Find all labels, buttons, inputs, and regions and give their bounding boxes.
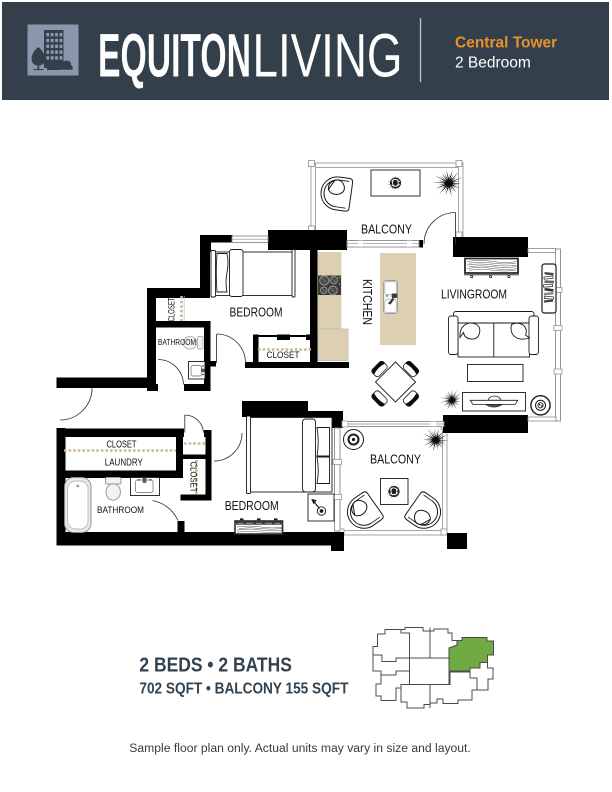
svg-text:BALCONY: BALCONY	[361, 223, 413, 237]
svg-text:BATHROOM: BATHROOM	[97, 505, 144, 516]
svg-text:CLOSET: CLOSET	[167, 297, 178, 321]
svg-text:2 Bedroom: 2 Bedroom	[455, 55, 531, 72]
svg-text:LIVINGROOM: LIVINGROOM	[441, 287, 507, 301]
svg-text:CLOSET: CLOSET	[188, 462, 199, 493]
svg-text:2 BEDS • 2 BATHS: 2 BEDS • 2 BATHS	[139, 654, 292, 676]
svg-text:CLOSET: CLOSET	[267, 350, 300, 360]
svg-text:Central Tower: Central Tower	[455, 35, 557, 52]
svg-text:LAUNDRY: LAUNDRY	[105, 458, 143, 469]
svg-text:CLOSET: CLOSET	[107, 439, 137, 450]
svg-text:BEDROOM: BEDROOM	[230, 305, 283, 320]
svg-text:BEDROOM: BEDROOM	[225, 498, 279, 513]
svg-text:BATHROOM: BATHROOM	[158, 338, 196, 347]
svg-text:EQUITON: EQUITON	[98, 22, 251, 90]
svg-text:BALCONY: BALCONY	[370, 452, 422, 466]
svg-text:702 SQFT • BALCONY 155 SQFT: 702 SQFT • BALCONY 155 SQFT	[139, 681, 348, 698]
svg-text:Sample floor plan only. Actual: Sample floor plan only. Actual units may…	[129, 743, 471, 755]
svg-text:LIVING: LIVING	[253, 22, 403, 90]
svg-text:KITCHEN: KITCHEN	[360, 279, 374, 325]
